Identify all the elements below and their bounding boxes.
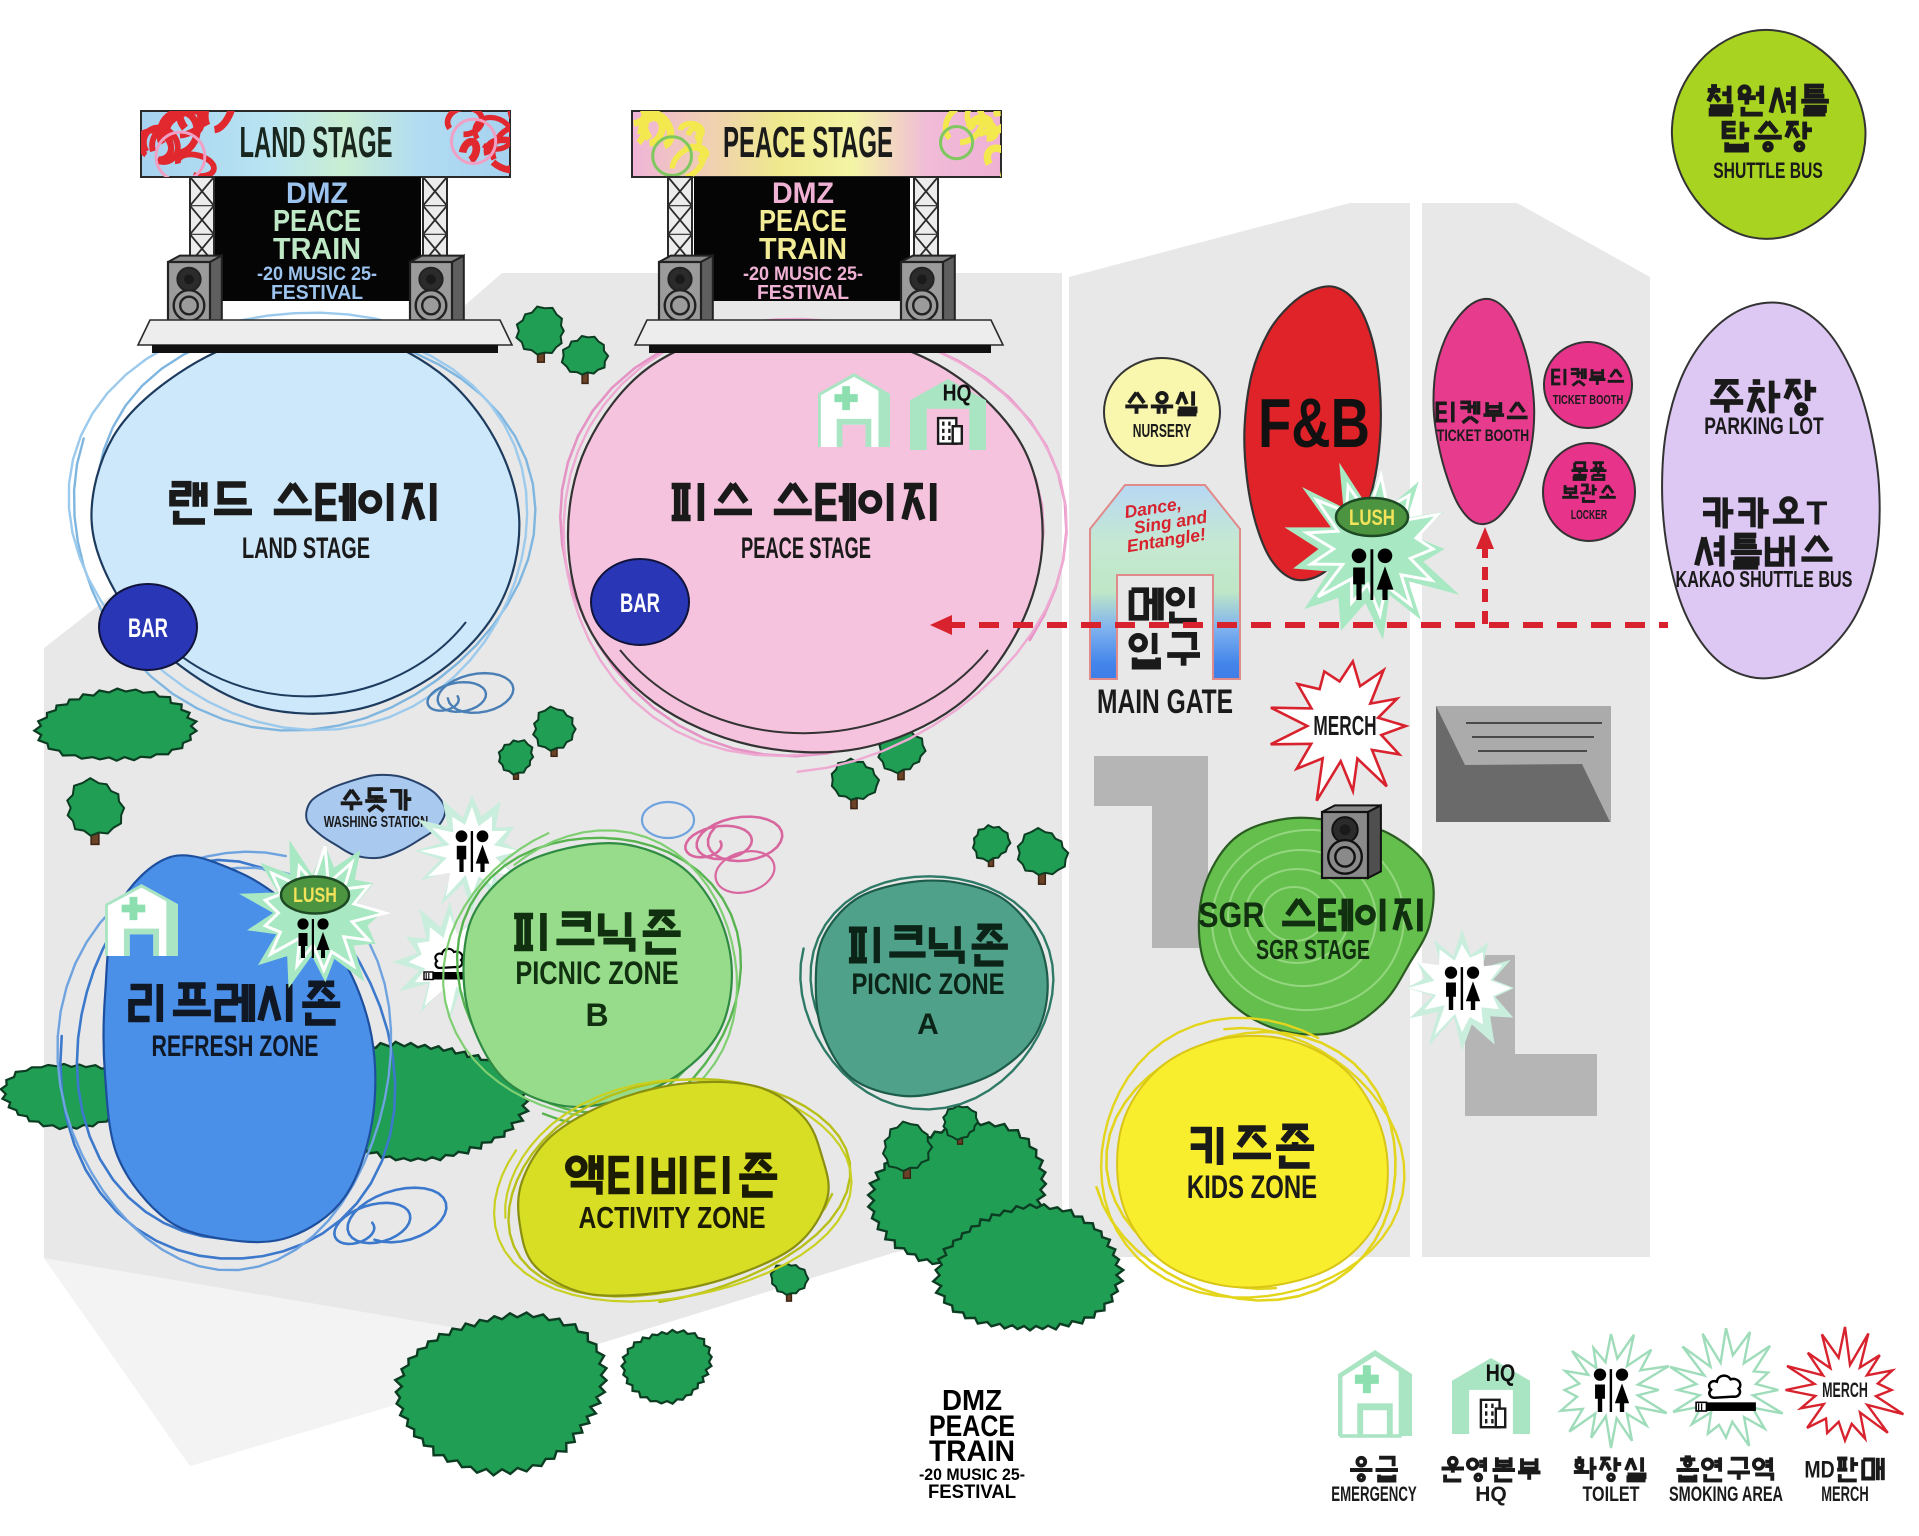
svg-text:SMOKING AREA: SMOKING AREA	[1669, 1483, 1783, 1506]
svg-text:MAIN GATE: MAIN GATE	[1097, 683, 1233, 721]
svg-text:MERCH: MERCH	[1822, 1379, 1868, 1402]
svg-text:PEACE STAGE: PEACE STAGE	[741, 532, 871, 565]
svg-text:REFRESH ZONE: REFRESH ZONE	[152, 1030, 319, 1063]
svg-text:FESTIVAL: FESTIVAL	[757, 282, 849, 304]
svg-text:LUSH: LUSH	[293, 884, 337, 907]
svg-text:A: A	[917, 1008, 939, 1041]
svg-text:MD: MD	[1804, 1456, 1834, 1483]
svg-text:LAND STAGE: LAND STAGE	[240, 118, 393, 167]
svg-text:PICNIC ZONE: PICNIC ZONE	[851, 968, 1004, 1001]
svg-text:ACTIVITY ZONE: ACTIVITY ZONE	[579, 1200, 766, 1235]
svg-text:B: B	[585, 997, 608, 1033]
svg-text:LUSH: LUSH	[1349, 505, 1395, 530]
svg-text:BAR: BAR	[128, 613, 168, 643]
svg-text:SGR: SGR	[1198, 896, 1264, 935]
svg-text:TOILET: TOILET	[1583, 1483, 1640, 1506]
svg-text:LOCKER: LOCKER	[1571, 507, 1608, 522]
svg-text:NURSERY: NURSERY	[1133, 421, 1192, 441]
svg-text:SHUTTLE BUS: SHUTTLE BUS	[1713, 158, 1823, 183]
svg-text:HQ: HQ	[1475, 1483, 1507, 1506]
svg-text:FESTIVAL: FESTIVAL	[928, 1482, 1016, 1503]
svg-text:FESTIVAL: FESTIVAL	[271, 282, 363, 304]
svg-text:MERCH: MERCH	[1313, 710, 1376, 741]
svg-text:LAND STAGE: LAND STAGE	[242, 532, 370, 565]
svg-text:TICKET BOOTH: TICKET BOOTH	[1553, 392, 1624, 407]
svg-text:HQ: HQ	[1486, 1360, 1516, 1387]
svg-text:EMERGENCY: EMERGENCY	[1331, 1483, 1417, 1506]
svg-text:PARKING LOT: PARKING LOT	[1704, 413, 1824, 440]
svg-text:KAKAO SHUTTLE BUS: KAKAO SHUTTLE BUS	[1676, 566, 1853, 592]
svg-text:TICKET BOOTH: TICKET BOOTH	[1437, 426, 1529, 445]
svg-text:PEACE STAGE: PEACE STAGE	[723, 118, 893, 167]
svg-text:MERCH: MERCH	[1821, 1483, 1869, 1506]
svg-text:TRAIN: TRAIN	[759, 231, 847, 266]
svg-text:TRAIN: TRAIN	[929, 1435, 1015, 1468]
svg-text:TRAIN: TRAIN	[273, 231, 361, 266]
svg-text:F&B: F&B	[1258, 384, 1370, 462]
svg-text:WASHING STATION: WASHING STATION	[324, 814, 428, 831]
svg-text:HQ: HQ	[943, 379, 972, 405]
svg-text:BAR: BAR	[620, 588, 660, 618]
svg-text:PICNIC ZONE: PICNIC ZONE	[515, 955, 678, 991]
svg-text:T: T	[1806, 496, 1827, 533]
svg-text:SGR STAGE: SGR STAGE	[1256, 934, 1370, 965]
svg-text:KIDS ZONE: KIDS ZONE	[1187, 1169, 1317, 1205]
